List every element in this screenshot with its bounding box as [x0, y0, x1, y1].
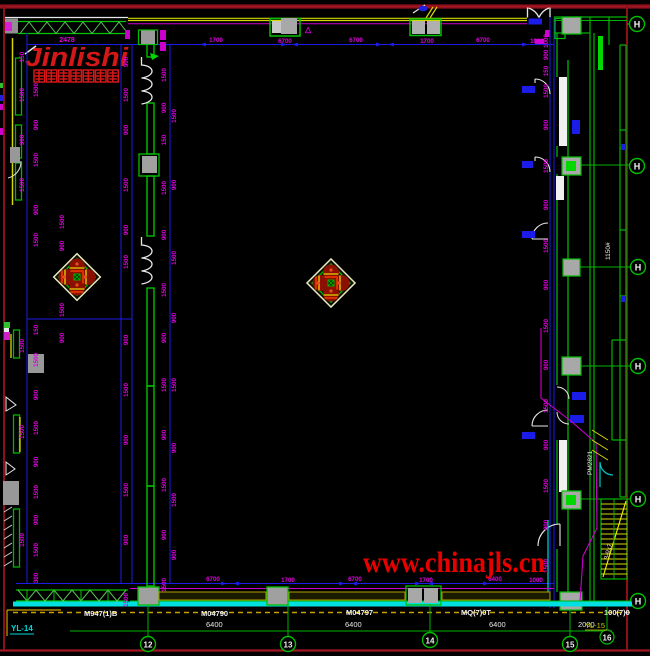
svg-text:13: 13	[284, 641, 293, 650]
svg-text:1150#: 1150#	[605, 242, 612, 260]
svg-text:6700: 6700	[348, 576, 362, 583]
svg-text:M947(1)B: M947(1)B	[84, 609, 118, 618]
svg-text:6700: 6700	[206, 576, 220, 583]
svg-text:H: H	[635, 263, 642, 273]
svg-text:900: 900	[171, 179, 178, 190]
svg-text:1500: 1500	[33, 153, 40, 167]
svg-text:1500: 1500	[161, 283, 168, 297]
svg-text:900: 900	[543, 279, 550, 290]
svg-text:150: 150	[19, 51, 26, 62]
svg-text:900: 900	[33, 514, 40, 525]
svg-text:900: 900	[161, 429, 168, 440]
svg-text:900: 900	[59, 240, 66, 251]
svg-text:1500: 1500	[33, 421, 40, 435]
svg-text:△: △	[304, 25, 312, 34]
svg-text:900: 900	[123, 224, 130, 235]
svg-text:1500: 1500	[161, 478, 168, 492]
svg-text:900: 900	[33, 119, 40, 130]
svg-text:900: 900	[161, 332, 168, 343]
svg-text:1500: 1500	[19, 178, 26, 192]
svg-text:1500: 1500	[543, 239, 550, 253]
svg-text:1500: 1500	[59, 215, 66, 229]
svg-text:1500: 1500	[19, 425, 26, 439]
svg-text:6400: 6400	[345, 620, 362, 629]
svg-text:1500: 1500	[543, 479, 550, 493]
svg-text:6700: 6700	[476, 37, 490, 44]
svg-text:100(7)0: 100(7)0	[604, 608, 630, 617]
svg-text:1500: 1500	[19, 88, 26, 102]
svg-text:12: 12	[144, 641, 153, 650]
svg-text:1700: 1700	[209, 37, 223, 44]
svg-text:6400: 6400	[206, 620, 223, 629]
svg-text:1700: 1700	[420, 38, 434, 45]
svg-text:1500: 1500	[171, 251, 178, 265]
svg-text:1500: 1500	[161, 578, 168, 592]
svg-text:300: 300	[33, 572, 40, 583]
svg-text:900: 900	[123, 124, 130, 135]
svg-text:900: 900	[123, 534, 130, 545]
svg-text:H: H	[634, 20, 641, 30]
svg-text:H: H	[634, 162, 641, 172]
svg-text:1500: 1500	[543, 319, 550, 333]
svg-text:1500: 1500	[123, 178, 130, 192]
svg-text:1500: 1500	[161, 68, 168, 82]
svg-text:1500: 1500	[171, 493, 178, 507]
svg-text:1000: 1000	[543, 34, 550, 48]
svg-text:900: 900	[171, 549, 178, 560]
svg-text:900: 900	[161, 102, 168, 113]
svg-text:900: 900	[123, 434, 130, 445]
svg-text:900: 900	[543, 49, 550, 60]
svg-text:1500: 1500	[59, 303, 66, 317]
svg-text:MQ(7)0T: MQ(7)0T	[461, 608, 491, 617]
svg-text:900: 900	[33, 204, 40, 215]
svg-text:900: 900	[543, 359, 550, 370]
svg-text:YL-15: YL-15	[585, 621, 605, 630]
svg-text:PM2821: PM2821	[587, 450, 594, 475]
svg-text:15: 15	[566, 641, 575, 650]
svg-text:900: 900	[161, 229, 168, 240]
svg-text:900: 900	[59, 332, 66, 343]
svg-text:www.chinajls.cn: www.chinajls.cn	[363, 546, 545, 579]
svg-text:150: 150	[33, 324, 40, 335]
svg-text:900: 900	[123, 56, 130, 67]
svg-text:1500: 1500	[123, 383, 130, 397]
svg-text:1500: 1500	[33, 353, 40, 367]
svg-text:6700: 6700	[349, 37, 363, 44]
svg-text:2478: 2478	[59, 37, 75, 44]
svg-text:900: 900	[171, 442, 178, 453]
svg-text:1500: 1500	[33, 543, 40, 557]
svg-text:900: 900	[543, 519, 550, 530]
svg-text:H: H	[635, 597, 642, 607]
svg-text:900: 900	[171, 312, 178, 323]
svg-text:1500: 1500	[33, 485, 40, 499]
svg-text:1500: 1500	[161, 181, 168, 195]
svg-text:900: 900	[123, 334, 130, 345]
svg-text:1500: 1500	[171, 378, 178, 392]
svg-text:1500: 1500	[543, 399, 550, 413]
svg-text:H: H	[635, 362, 642, 372]
svg-text:900: 900	[543, 119, 550, 130]
svg-text:900: 900	[19, 134, 26, 145]
svg-text:1500: 1500	[33, 83, 40, 97]
svg-text:16: 16	[603, 634, 612, 643]
svg-text:1700: 1700	[281, 577, 295, 584]
svg-text:YL-14: YL-14	[11, 624, 33, 633]
svg-text:H: H	[635, 495, 642, 505]
svg-text:M04790: M04790	[201, 609, 228, 618]
svg-text:150: 150	[543, 65, 550, 76]
svg-text:900: 900	[33, 456, 40, 467]
svg-text:900: 900	[543, 439, 550, 450]
svg-text:6400: 6400	[489, 620, 506, 629]
svg-text:1500: 1500	[171, 109, 178, 123]
svg-text:900: 900	[543, 199, 550, 210]
svg-text:Jinlishi: Jinlishi	[25, 44, 129, 72]
svg-text:1500: 1500	[161, 378, 168, 392]
svg-text:150: 150	[161, 134, 168, 145]
svg-text:1500: 1500	[33, 233, 40, 247]
svg-text:1500: 1500	[543, 84, 550, 98]
svg-text:M04797: M04797	[346, 608, 373, 617]
svg-text:1500: 1500	[123, 255, 130, 269]
svg-text:1500: 1500	[123, 593, 130, 607]
svg-text:1500: 1500	[19, 533, 26, 547]
svg-text:6700: 6700	[278, 38, 292, 45]
svg-text:1500: 1500	[19, 339, 26, 353]
svg-text:1500: 1500	[543, 159, 550, 173]
svg-text:1500: 1500	[123, 88, 130, 102]
svg-text:900: 900	[33, 389, 40, 400]
svg-text:1500: 1500	[123, 483, 130, 497]
svg-text:900: 900	[161, 529, 168, 540]
svg-text:14: 14	[426, 637, 435, 646]
